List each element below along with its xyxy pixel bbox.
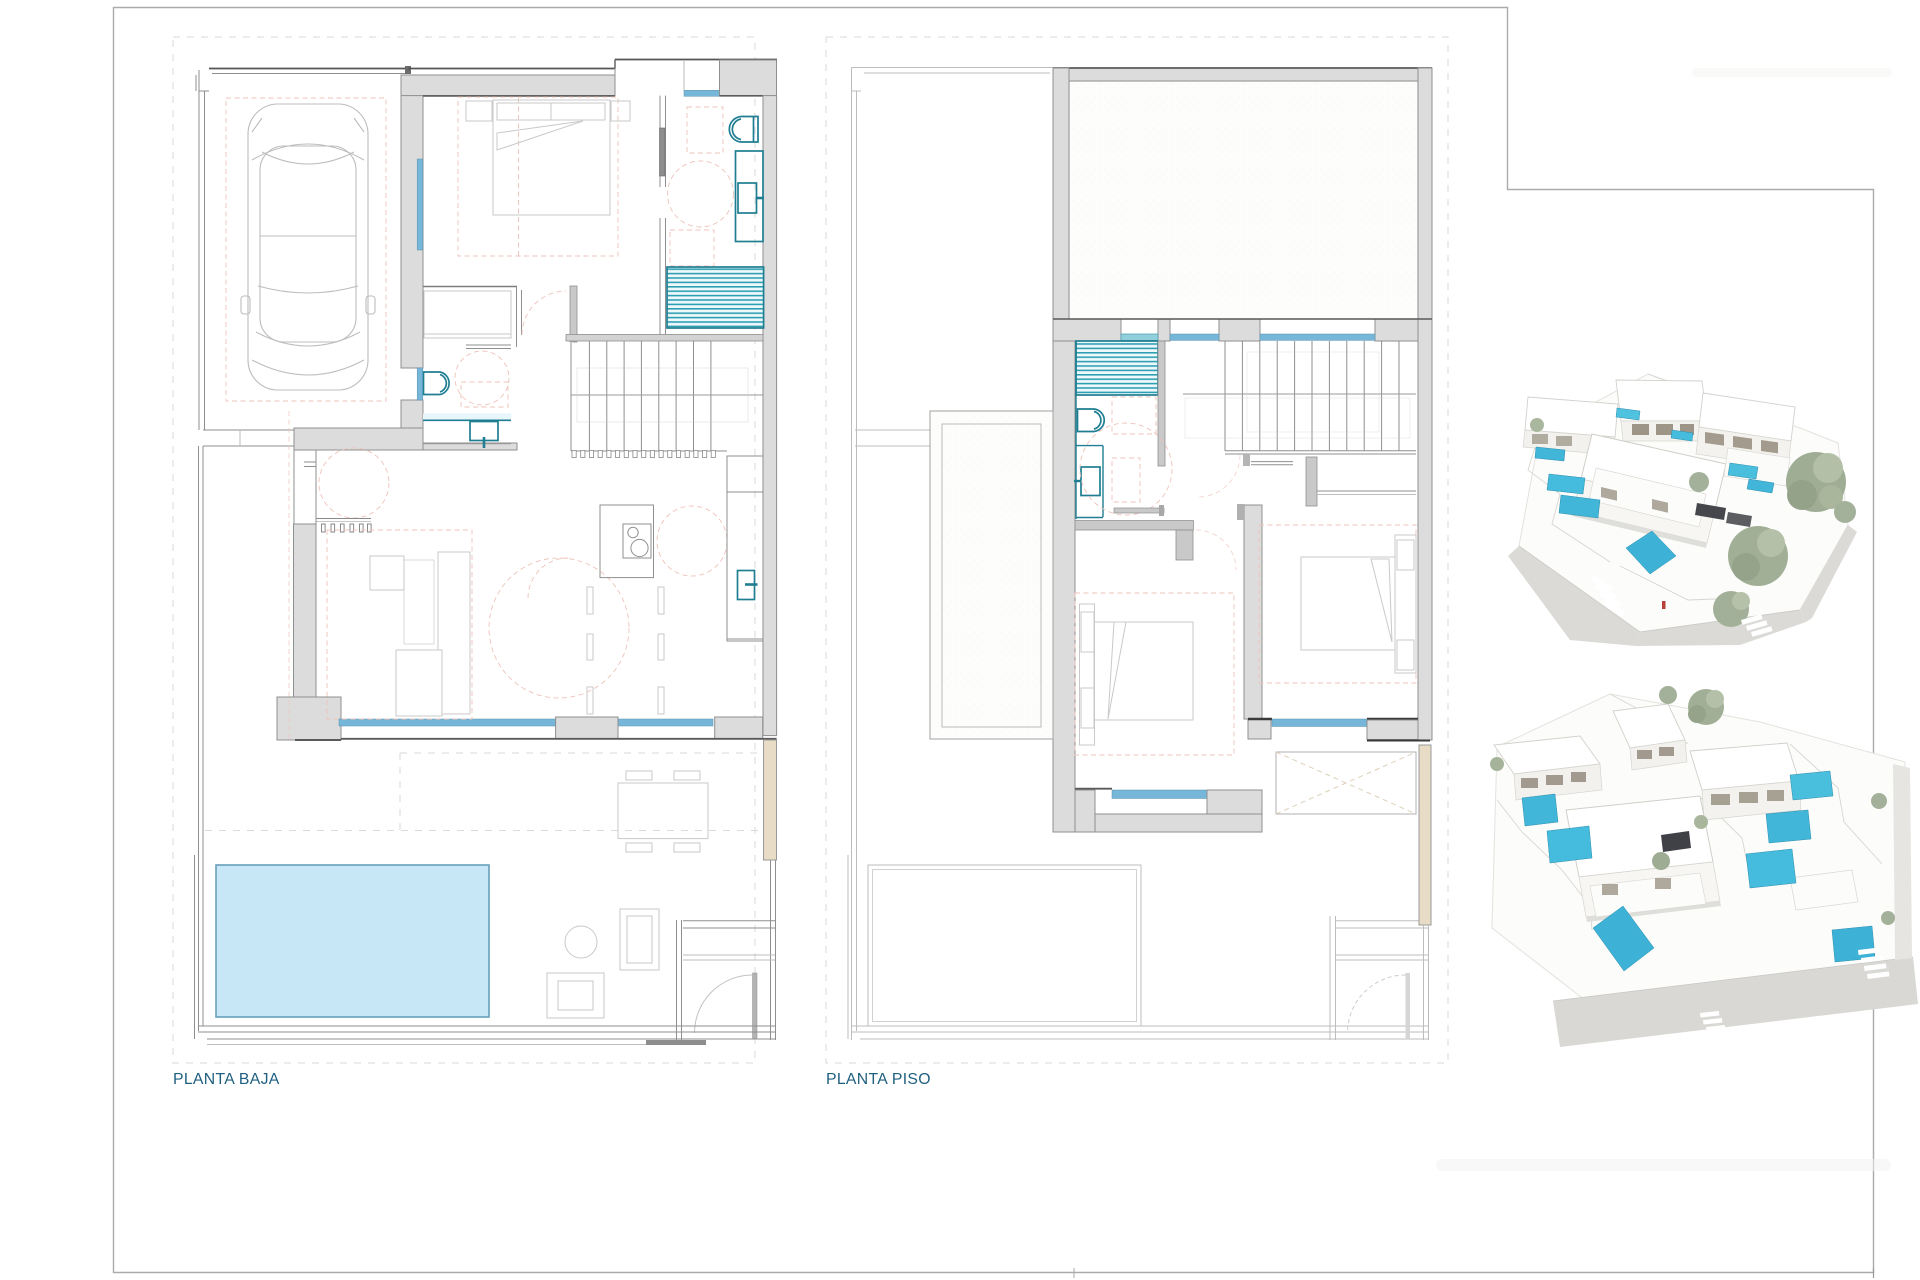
svg-text:PLANTA PISO: PLANTA PISO [826, 1071, 931, 1088]
svg-text:PLANTA BAJA: PLANTA BAJA [173, 1071, 280, 1088]
